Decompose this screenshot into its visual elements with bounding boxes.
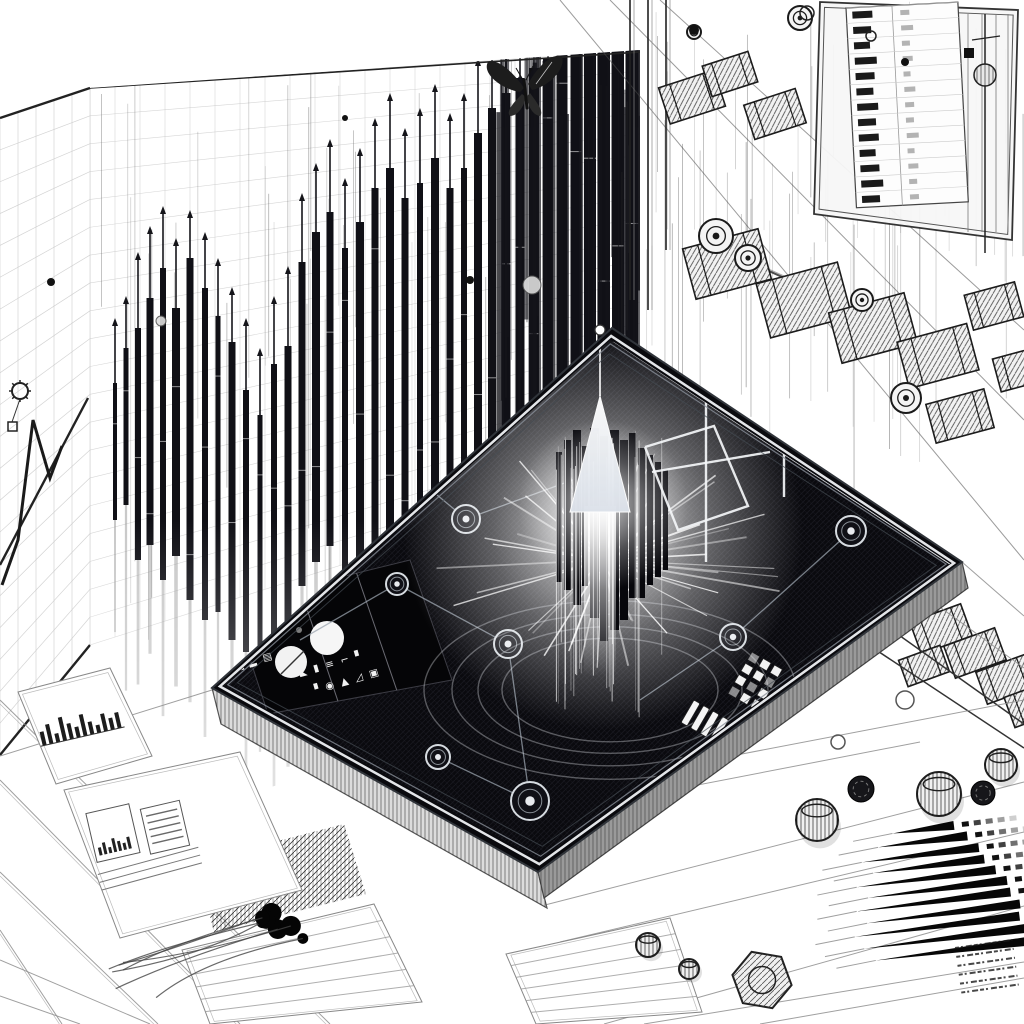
trace-node-ring (831, 735, 845, 749)
machine-block (744, 89, 806, 140)
ledger-row-mark (856, 88, 873, 96)
blueprint-paper (506, 918, 702, 1024)
dark-cap (848, 776, 874, 802)
circuit-pad (836, 516, 866, 546)
machine-block (964, 282, 1024, 330)
control-knob (796, 799, 841, 848)
circuit-pad (511, 782, 549, 820)
artwork-canvas: ◣ ▮ ≡ ⌐ ▘▝ ◉ ▲ ◿ ▣▌▂ ▤ (0, 0, 1024, 1024)
ink-illustration: ◣ ▮ ≡ ⌐ ▘▝ ◉ ▲ ◿ ▣▌▂ ▤ (0, 0, 1024, 1024)
floating-dot (47, 278, 55, 286)
flange-ring (735, 245, 761, 271)
flange-ring (891, 383, 921, 413)
small-disc-ornament (523, 276, 541, 294)
circuit-pad (426, 745, 450, 769)
ledger-row-mark (855, 57, 877, 65)
ledger-row-mark (862, 195, 880, 203)
small-black-square (964, 48, 974, 58)
corner-ball-ornament (595, 325, 605, 335)
ledger-row-mark (859, 149, 875, 157)
floating-dot (689, 25, 699, 35)
ledger-panel (846, 2, 968, 208)
floating-dot (466, 276, 474, 284)
flange-ring (788, 6, 812, 30)
floating-dot (901, 58, 909, 66)
left-wall-panel (0, 88, 90, 755)
circuit-pad (386, 573, 408, 595)
dark-cap (971, 781, 995, 805)
small-disc-ornament (156, 316, 166, 326)
hexagon-component (732, 952, 791, 1008)
control-knob (985, 749, 1020, 787)
machine-block (702, 51, 758, 96)
ledger-row-mark (855, 72, 874, 80)
ledger-row-mark (861, 180, 883, 188)
ledger-row-mark (858, 118, 876, 126)
floating-dot (342, 115, 348, 121)
ledger-row-mark (859, 134, 879, 142)
ledger-row-mark (854, 42, 870, 50)
trace-node-ring (896, 691, 914, 709)
ledger-row-mark (857, 103, 878, 111)
ledger-row-mark (853, 26, 871, 34)
pie-chart-circle (310, 621, 344, 655)
gear-icon (9, 380, 31, 402)
ledger-row-mark (860, 164, 879, 172)
flange-ring (699, 219, 733, 253)
machine-block (992, 346, 1024, 392)
flange-ring (851, 289, 873, 311)
ledger-row-mark (852, 11, 872, 19)
control-knob (917, 772, 964, 824)
